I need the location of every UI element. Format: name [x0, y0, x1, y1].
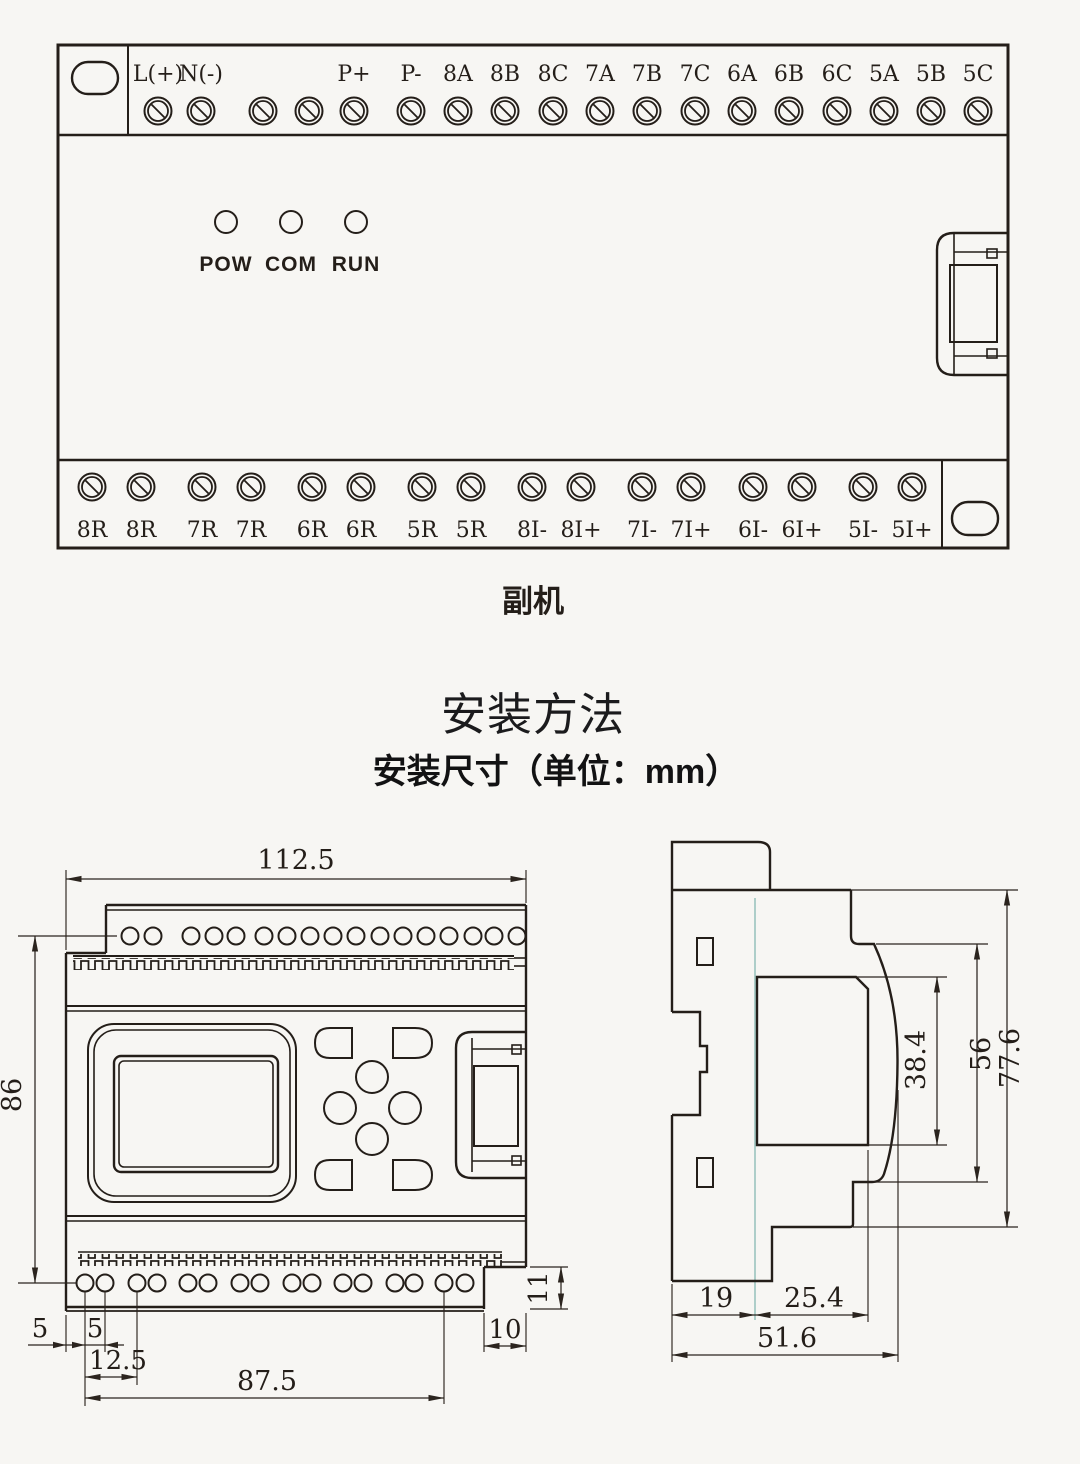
terminal-label: 5B: [916, 62, 946, 87]
bottom-terminal-screws: [79, 474, 926, 501]
section-subtitle: 安装尺寸（单位：mm）: [32, 744, 1080, 793]
screw-terminal: [341, 98, 368, 125]
screw-terminal: [296, 98, 323, 125]
terminal-label: 6B: [774, 62, 804, 87]
screw-terminal: [145, 98, 172, 125]
wire-hole: [145, 928, 162, 945]
dim-hole-group-pitch: 12.5: [89, 1346, 147, 1376]
top-terminal-labels: L(+)N(-)P+P-8A8B8C7A7B7C6A6B6C5A5B5C: [133, 62, 994, 87]
dim-total-height: 77.6: [995, 1028, 1026, 1088]
wire-hole: [486, 928, 503, 945]
led-label: COM: [265, 253, 317, 276]
wire-hole: [284, 1275, 301, 1292]
mounting-slot-top-left: [72, 62, 118, 94]
key-right: [389, 1092, 421, 1124]
screw-terminal: [629, 474, 656, 501]
terminal-label: 6R: [346, 518, 378, 543]
screw-terminal: [409, 474, 436, 501]
dim-edge-to-hole: 5: [32, 1314, 49, 1344]
wire-hole: [465, 928, 482, 945]
side-profile: [672, 890, 898, 1281]
wire-hole: [395, 928, 412, 945]
terminal-label: N(-): [179, 62, 223, 87]
screw-terminal: [729, 98, 756, 125]
screw-terminal: [918, 98, 945, 125]
screw-terminal: [445, 98, 472, 125]
screw-terminal: [189, 474, 216, 501]
screw-terminal: [188, 98, 215, 125]
terminal-label: 7A: [585, 62, 616, 87]
wire-hole: [200, 1275, 217, 1292]
screw-terminal: [492, 98, 519, 125]
screw-terminal: [899, 474, 926, 501]
bottom-terminal-labels: 8R8R7R7R6R6R5R5R8I-8I+7I-7I+6I-6I+5I-5I+: [77, 518, 933, 543]
led-label: RUN: [332, 253, 381, 276]
wire-hole: [180, 1275, 197, 1292]
key-bottom-right: [393, 1160, 432, 1190]
status-leds: POWCOMRUN: [199, 211, 380, 276]
screw-terminal: [740, 474, 767, 501]
key-bottom-left: [315, 1160, 352, 1190]
side-view-drawing: 38.4 56 77.6 19 25.4 51.6: [672, 842, 1026, 1362]
wire-hole: [232, 1275, 249, 1292]
terminal-label: 8R: [126, 518, 158, 543]
terminal-label: 5I+: [891, 518, 932, 543]
wire-hole: [256, 928, 273, 945]
wire-hole: [335, 1275, 352, 1292]
dim-front-height: 56: [966, 1037, 997, 1071]
wire-hole: [122, 928, 139, 945]
mounting-slot-bottom-right: [952, 502, 998, 535]
wire-hole: [509, 928, 526, 945]
terminal-label: 6I+: [781, 518, 822, 543]
key-top-left: [315, 1028, 352, 1058]
terminal-label: 5A: [869, 62, 900, 87]
terminal-panel-diagram: L(+)N(-)P+P-8A8B8C7A7B7C6A6B6C5A5B5C 8R8…: [58, 45, 1008, 620]
wire-hole: [325, 928, 342, 945]
wire-hole: [436, 1275, 453, 1292]
wire-hole: [348, 928, 365, 945]
terminal-label: 5R: [407, 518, 439, 543]
screw-terminal: [587, 98, 614, 125]
wire-hole: [406, 1275, 423, 1292]
wire-hole: [302, 928, 319, 945]
front-expansion-connector: [456, 1032, 526, 1178]
terminal-label: 5I-: [848, 518, 878, 543]
dim-window-height: 38.4: [901, 1030, 932, 1090]
terminal-label: 7I-: [627, 518, 657, 543]
wire-hole: [457, 1275, 474, 1292]
terminal-label: 7I+: [670, 518, 711, 543]
wire-hole: [418, 928, 435, 945]
screw-terminal: [568, 474, 595, 501]
front-bottom-wire-holes: [77, 1275, 474, 1292]
section-title: 安装方法: [0, 678, 1080, 743]
screw-terminal: [789, 474, 816, 501]
top-terminal-screws: [145, 98, 992, 125]
wire-hole: [387, 1275, 404, 1292]
dim-notch-width: 10: [488, 1315, 521, 1345]
led-label: POW: [199, 253, 252, 276]
screw-terminal: [824, 98, 851, 125]
screw-terminal: [79, 474, 106, 501]
dim-hole-pitch: 5: [87, 1314, 104, 1344]
wire-hole: [372, 928, 389, 945]
screw-terminal: [634, 98, 661, 125]
key-top-right: [393, 1028, 432, 1058]
terminal-label: 7C: [680, 62, 711, 87]
terminal-label: 6I-: [738, 518, 768, 543]
front-top-wire-holes: [122, 928, 526, 945]
wire-hole: [279, 928, 296, 945]
screw-terminal: [540, 98, 567, 125]
screw-terminal: [965, 98, 992, 125]
key-down: [356, 1123, 388, 1155]
terminal-label: 8B: [490, 62, 520, 87]
vent-serration-top: [73, 958, 514, 970]
screw-terminal: [678, 474, 705, 501]
screw-terminal: [850, 474, 877, 501]
page: L(+)N(-)P+P-8A8B8C7A7B7C6A6B6C5A5B5C 8R8…: [0, 0, 1080, 1464]
terminal-label: 8I-: [517, 518, 547, 543]
terminal-label: L(+): [133, 62, 183, 87]
model-label: 副机: [502, 584, 564, 620]
key-left: [324, 1092, 356, 1124]
terminal-label: P-: [400, 62, 421, 87]
screw-terminal: [128, 474, 155, 501]
wire-hole: [149, 1275, 166, 1292]
wire-hole: [252, 1275, 269, 1292]
screw-terminal: [682, 98, 709, 125]
side-window-section: [757, 977, 868, 1145]
terminal-label: 8A: [443, 62, 474, 87]
expansion-connector: [937, 233, 1008, 375]
terminal-label: 8I+: [560, 518, 601, 543]
dim-hole-span: 87.5: [237, 1366, 297, 1397]
wire-hole: [355, 1275, 372, 1292]
wire-hole: [206, 928, 223, 945]
dim-back-depth: 19: [699, 1283, 733, 1314]
terminal-label: 6A: [727, 62, 758, 87]
screw-terminal: [238, 474, 265, 501]
din-rail-slot: [672, 1012, 707, 1115]
wire-hole: [129, 1275, 146, 1292]
terminal-label: 8R: [77, 518, 109, 543]
wire-hole: [441, 928, 458, 945]
terminal-label: 8C: [538, 62, 569, 87]
wire-hole: [228, 928, 245, 945]
wire-hole: [183, 928, 200, 945]
screw-terminal: [250, 98, 277, 125]
led-indicator: [345, 211, 367, 233]
dim-front-depth: 25.4: [784, 1283, 844, 1314]
lcd-window: [114, 1056, 278, 1172]
vent-serration-bottom: [78, 1254, 502, 1266]
dim-height: 86: [0, 1078, 28, 1112]
screw-terminal: [871, 98, 898, 125]
screw-terminal: [776, 98, 803, 125]
keypad: [315, 1028, 432, 1190]
terminal-label: 7B: [632, 62, 662, 87]
led-indicator: [215, 211, 237, 233]
wire-hole: [77, 1275, 94, 1292]
terminal-label: 5C: [963, 62, 994, 87]
terminal-label: 7R: [187, 518, 219, 543]
terminal-label: 7R: [236, 518, 268, 543]
dim-notch-height: 11: [524, 1271, 554, 1304]
key-up: [356, 1061, 388, 1093]
terminal-label: 6C: [822, 62, 853, 87]
terminal-label: 6R: [297, 518, 329, 543]
wire-hole: [304, 1275, 321, 1292]
dim-total-depth: 51.6: [757, 1323, 817, 1354]
terminal-label: 5R: [456, 518, 488, 543]
dim-width: 112.5: [257, 845, 334, 876]
screw-terminal: [348, 474, 375, 501]
led-indicator: [280, 211, 302, 233]
screw-terminal: [458, 474, 485, 501]
wire-hole: [97, 1275, 114, 1292]
screw-terminal: [299, 474, 326, 501]
screw-terminal: [398, 98, 425, 125]
screw-terminal: [519, 474, 546, 501]
terminal-label: P+: [337, 62, 370, 87]
front-view-drawing: 112.5 86: [0, 845, 568, 1406]
